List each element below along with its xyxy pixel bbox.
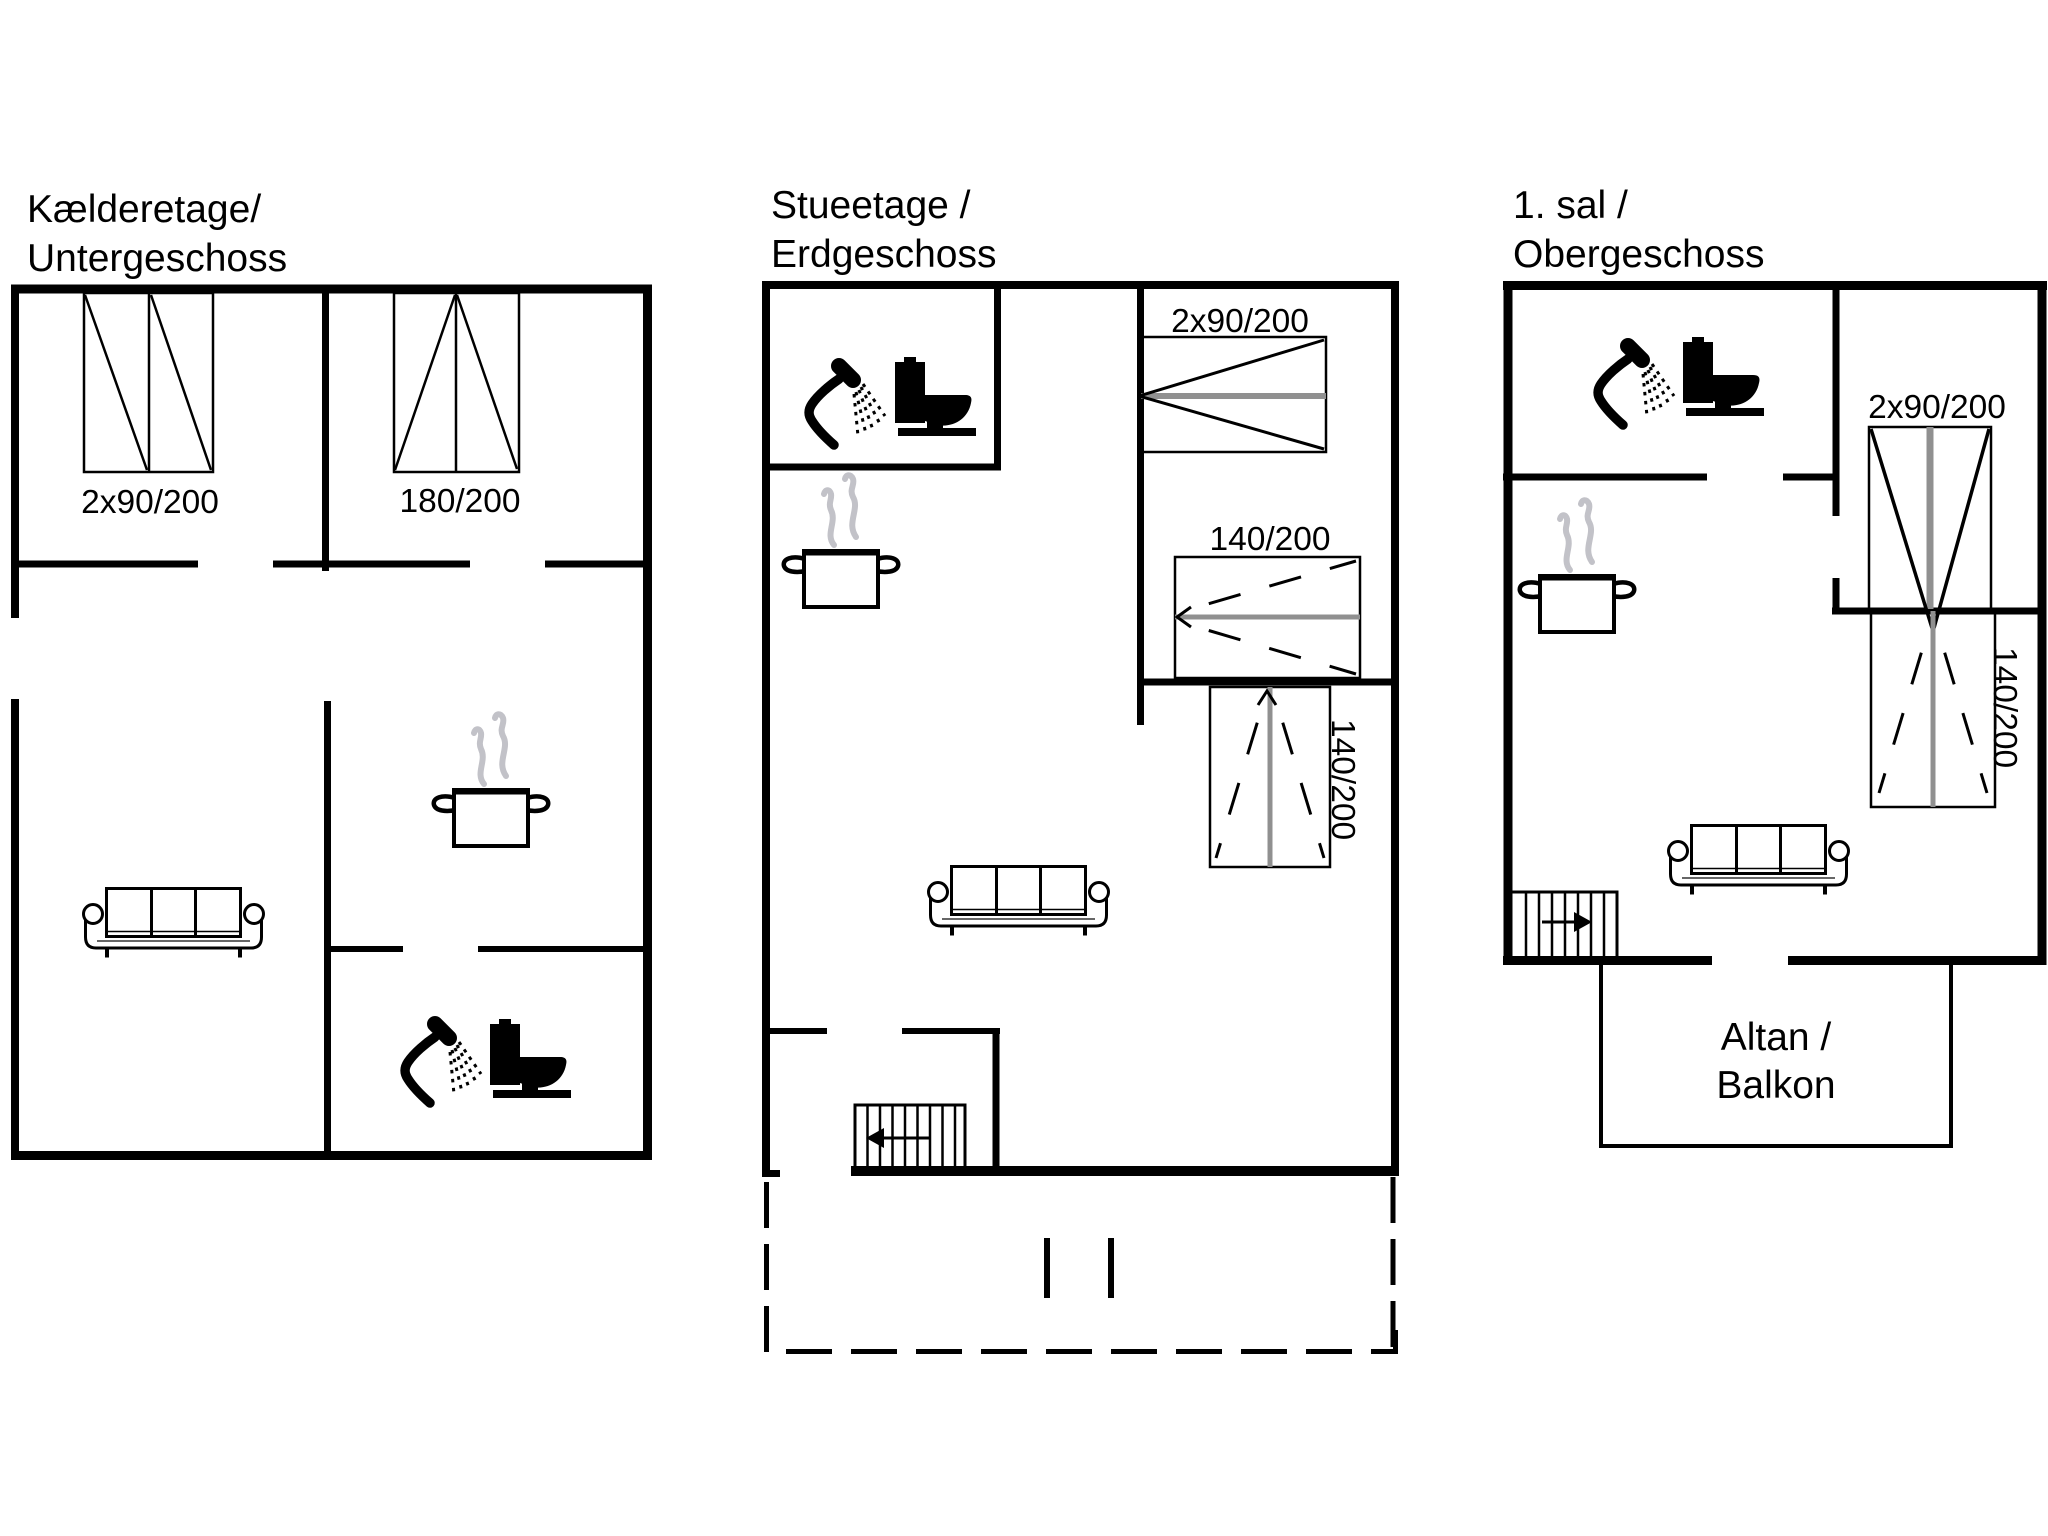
svg-text:Untergeschoss: Untergeschoss — [27, 237, 287, 280]
svg-text:Stueetage /: Stueetage / — [771, 184, 971, 227]
svg-text:140/200: 140/200 — [1986, 647, 2023, 768]
svg-text:2x90/200: 2x90/200 — [81, 484, 219, 521]
svg-text:2x90/200: 2x90/200 — [1171, 303, 1309, 340]
svg-text:2x90/200: 2x90/200 — [1868, 389, 2006, 426]
svg-text:1. sal /: 1. sal / — [1513, 184, 1628, 227]
svg-text:180/200: 180/200 — [399, 483, 520, 520]
svg-text:Kælderetage/: Kælderetage/ — [27, 188, 261, 231]
svg-text:Altan /: Altan / — [1721, 1016, 1832, 1059]
svg-text:Erdgeschoss: Erdgeschoss — [771, 233, 996, 276]
svg-text:Obergeschoss: Obergeschoss — [1513, 233, 1764, 276]
svg-text:140/200: 140/200 — [1324, 719, 1361, 840]
svg-text:140/200: 140/200 — [1209, 521, 1330, 558]
svg-text:Balkon: Balkon — [1716, 1064, 1835, 1107]
